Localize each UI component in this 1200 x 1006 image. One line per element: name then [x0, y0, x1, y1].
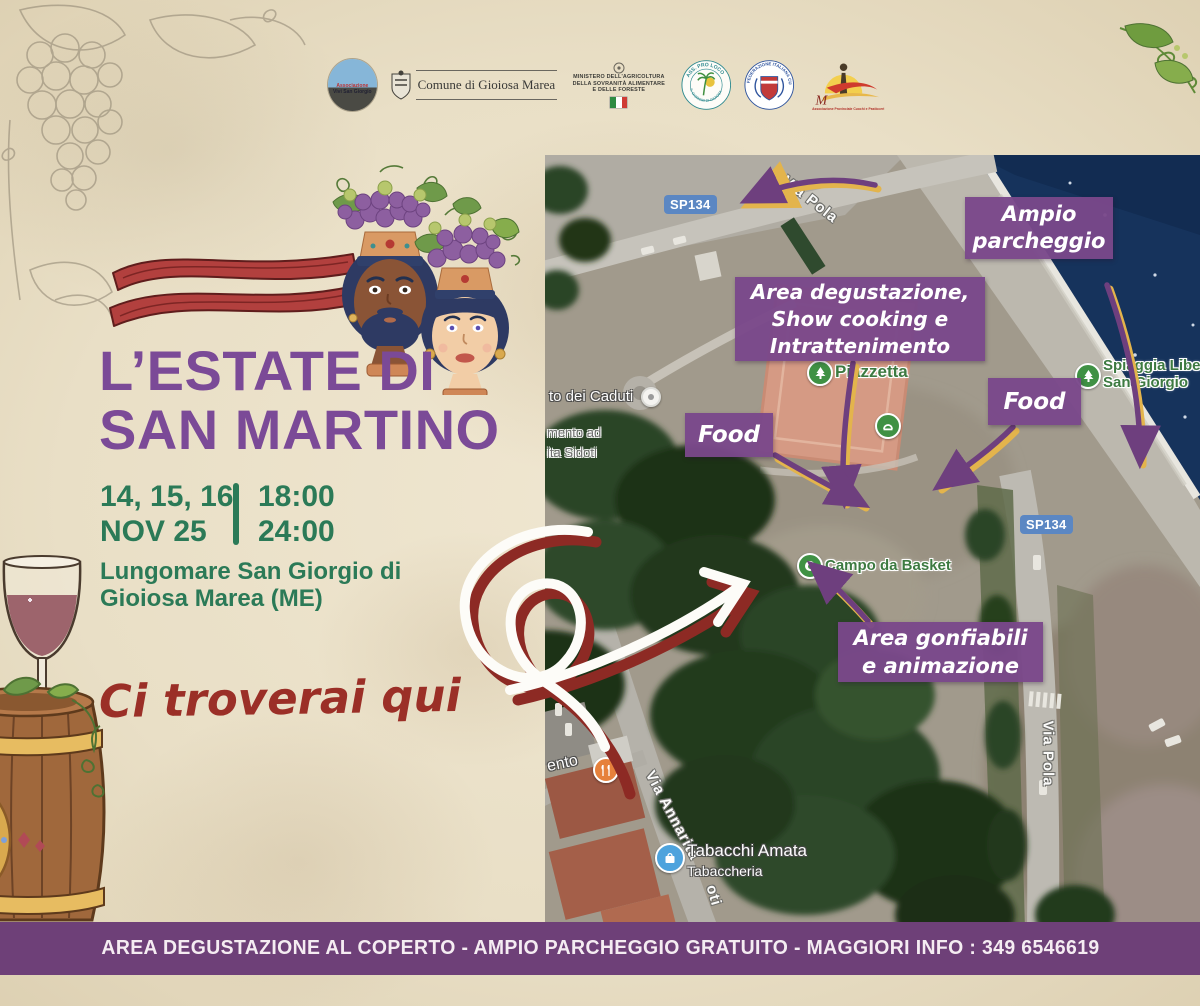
- partner-logos-row: Associazione Vivi San Giorgio Comune di …: [328, 52, 888, 118]
- flyer-page: Associazione Vivi San Giorgio Comune di …: [0, 0, 1200, 1006]
- annotation-line: Food: [988, 389, 1081, 415]
- annotation-line: e animazione: [838, 652, 1043, 680]
- annotation-area-degustazione: Area degustazione, Show cooking e Intrat…: [735, 277, 985, 361]
- comune-label: Comune di Gioiosa Marea: [416, 70, 558, 100]
- footer-text: AREA DEGUSTAZIONE AL COPERTO - AMPIO PAR…: [101, 937, 1099, 960]
- logo-vivi-line2: Vivi San Giorgio: [333, 89, 372, 95]
- event-dates-month: NOV 25: [100, 514, 233, 549]
- annotation-line: Show cooking e: [735, 306, 985, 333]
- logo-cuochi-pasticceri: M Associazione Provinciale Cuochi e Past…: [808, 54, 888, 116]
- annotation-line: Intrattenimento: [735, 333, 985, 360]
- annotation-line: parcheggio: [965, 228, 1113, 255]
- tagline-ci-troverai-qui: Ci troverai qui: [99, 669, 462, 728]
- annotation-food-right: Food: [988, 378, 1081, 425]
- logo-comune-gioiosa-marea: Comune di Gioiosa Marea: [390, 70, 558, 100]
- event-address: Lungomare San Giorgio di Gioiosa Marea (…: [100, 558, 401, 612]
- event-dates-days: 14, 15, 16: [100, 479, 233, 514]
- schedule-divider: [233, 483, 239, 545]
- green-vine-illustration: [1115, 18, 1200, 108]
- footer-info-bar: AREA DEGUSTAZIONE AL COPERTO - AMPIO PAR…: [0, 922, 1200, 975]
- event-times: 18:00 24:00: [258, 479, 335, 549]
- event-address-line1: Lungomare San Giorgio di: [100, 558, 401, 585]
- annotation-area-gonfiabili: Area gonfiabili e animazione: [838, 622, 1043, 682]
- annotation-line: Area gonfiabili: [838, 624, 1043, 652]
- event-title: L’ESTATE DI SAN MARTINO: [99, 341, 500, 459]
- annotation-line: Ampio: [965, 201, 1113, 228]
- annotation-line: Food: [685, 422, 773, 448]
- logo-pro-loco: ASS. PRO LOCO S. GIORGIO DI GIOIOSA: [681, 58, 732, 112]
- event-time-start: 18:00: [258, 479, 335, 514]
- hand-drawn-arrow: [440, 512, 770, 812]
- event-time-end: 24:00: [258, 514, 335, 549]
- event-title-line1: L’ESTATE DI: [99, 341, 500, 400]
- logo-vivi-san-giorgio: Associazione Vivi San Giorgio: [328, 59, 377, 111]
- event-title-line2: SAN MARTINO: [99, 400, 500, 459]
- logo-federazione-italiana-cuochi: FEDERAZIONE ITALIANA CUOCHI: [744, 58, 795, 112]
- logo-ministero-agricoltura: MINISTERO DELL'AGRICOLTURA DELLA SOVRANI…: [570, 62, 667, 107]
- cuochi-caption: Associazione Provinciale Cuochi e Pastic…: [812, 107, 884, 111]
- annotation-line: Area degustazione,: [735, 279, 985, 306]
- red-ribbon-illustration: [108, 228, 358, 343]
- ministero-line3: E DELLE FORESTE: [592, 87, 645, 93]
- wine-barrel-illustration: [0, 550, 112, 950]
- event-dates: 14, 15, 16 NOV 25: [100, 479, 233, 549]
- italian-flag-icon: [610, 97, 627, 108]
- annotation-ampio-parcheggio: Ampio parcheggio: [965, 197, 1113, 259]
- ministero-emblem-icon: [613, 62, 625, 74]
- comune-crest-icon: [390, 70, 412, 100]
- cuochi-script-m: M: [814, 93, 828, 109]
- event-address-line2: Gioiosa Marea (ME): [100, 585, 401, 612]
- annotation-food-left: Food: [685, 413, 773, 457]
